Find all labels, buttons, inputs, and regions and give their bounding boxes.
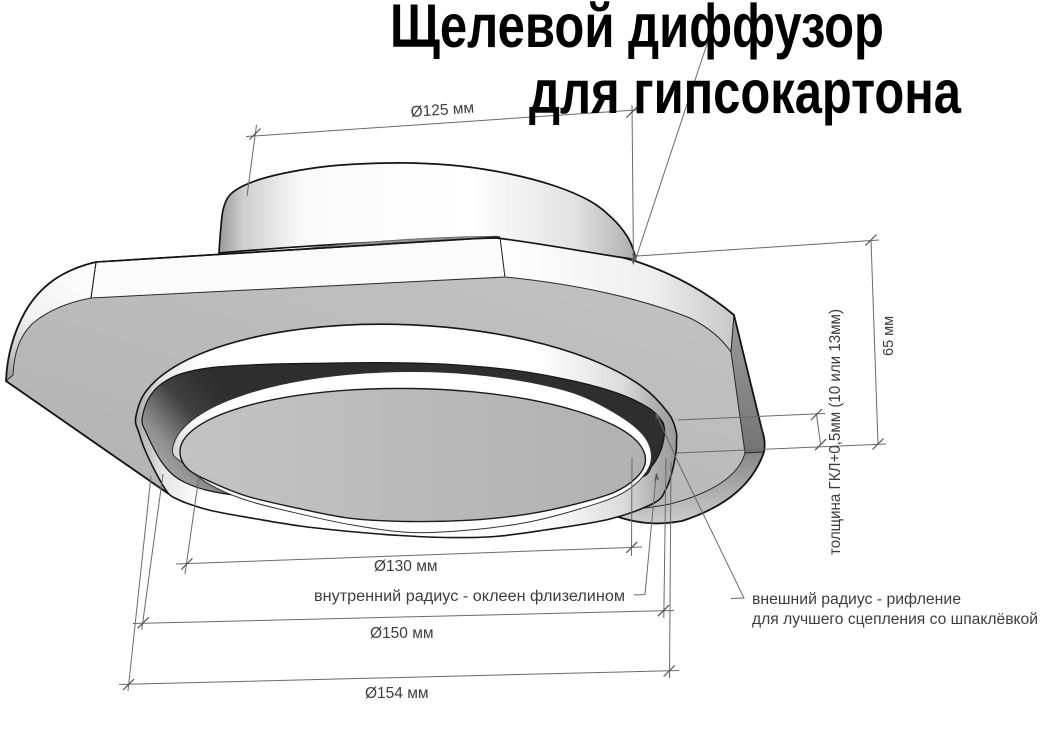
- svg-text:Щелевой диффузор: Щелевой диффузор: [390, 0, 884, 60]
- svg-text:Ø150 мм: Ø150 мм: [370, 625, 434, 642]
- svg-text:Ø130 мм: Ø130 мм: [374, 558, 438, 575]
- svg-text:65 мм: 65 мм: [881, 316, 897, 356]
- svg-text:внешний радиус - рифление: внешний радиус - рифление: [752, 591, 961, 608]
- svg-text:для лучшего сцепления со шпакл: для лучшего сцепления со шпаклёвкой: [752, 611, 1038, 628]
- svg-text:для гипсокартона: для гипсокартона: [529, 58, 962, 126]
- svg-text:толщина ГКЛ+0,5мм (10 или 13мм: толщина ГКЛ+0,5мм (10 или 13мм): [827, 309, 844, 555]
- svg-text:Ø154 мм: Ø154 мм: [365, 685, 429, 702]
- svg-text:внутренний радиус - оклеен фли: внутренний радиус - оклеен флизелином: [314, 588, 625, 605]
